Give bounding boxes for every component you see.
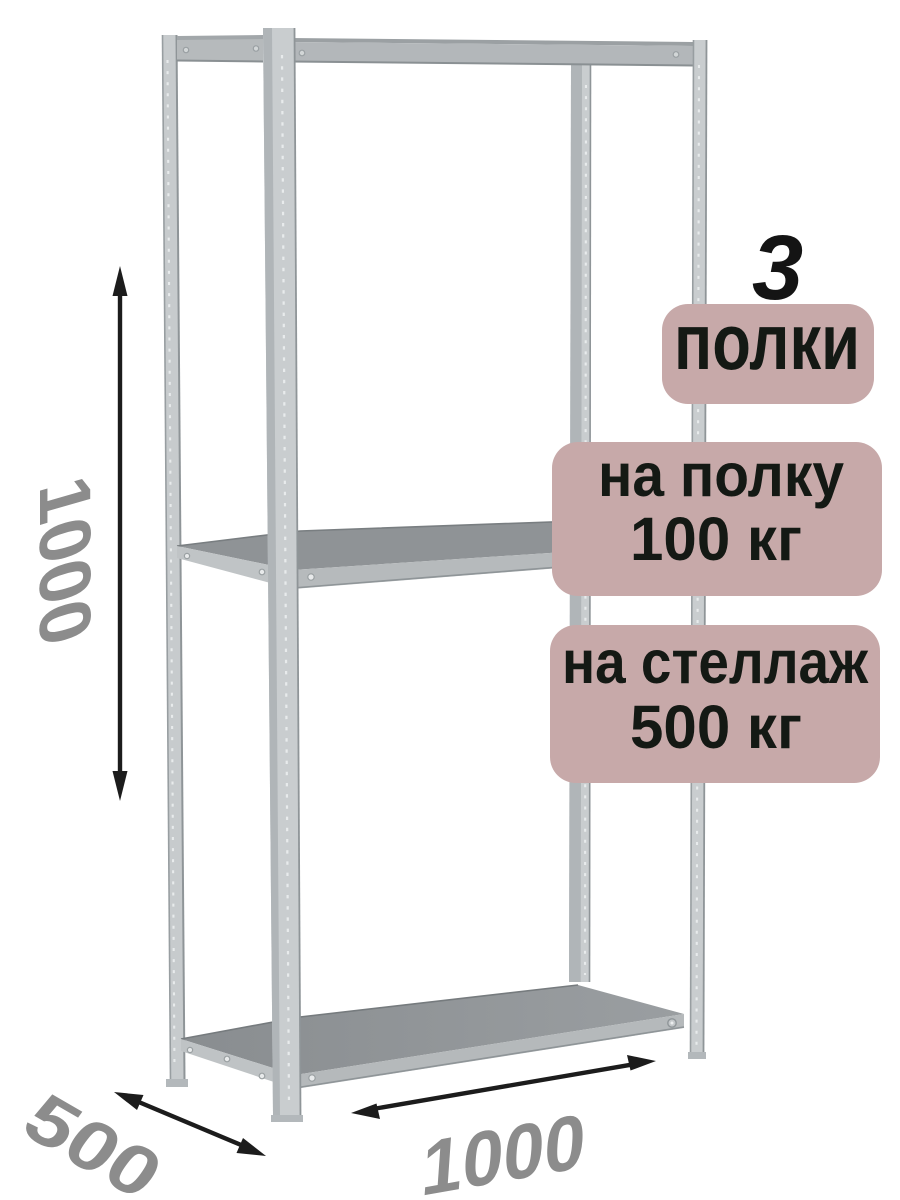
svg-text:1000: 1000 [24,467,105,654]
svg-text:500 кг: 500 кг [630,693,802,761]
svg-text:на стеллаж: на стеллаж [562,628,869,696]
svg-text:на полку: на полку [598,441,844,509]
svg-text:полки: полки [674,297,860,386]
svg-text:100 кг: 100 кг [630,505,802,573]
